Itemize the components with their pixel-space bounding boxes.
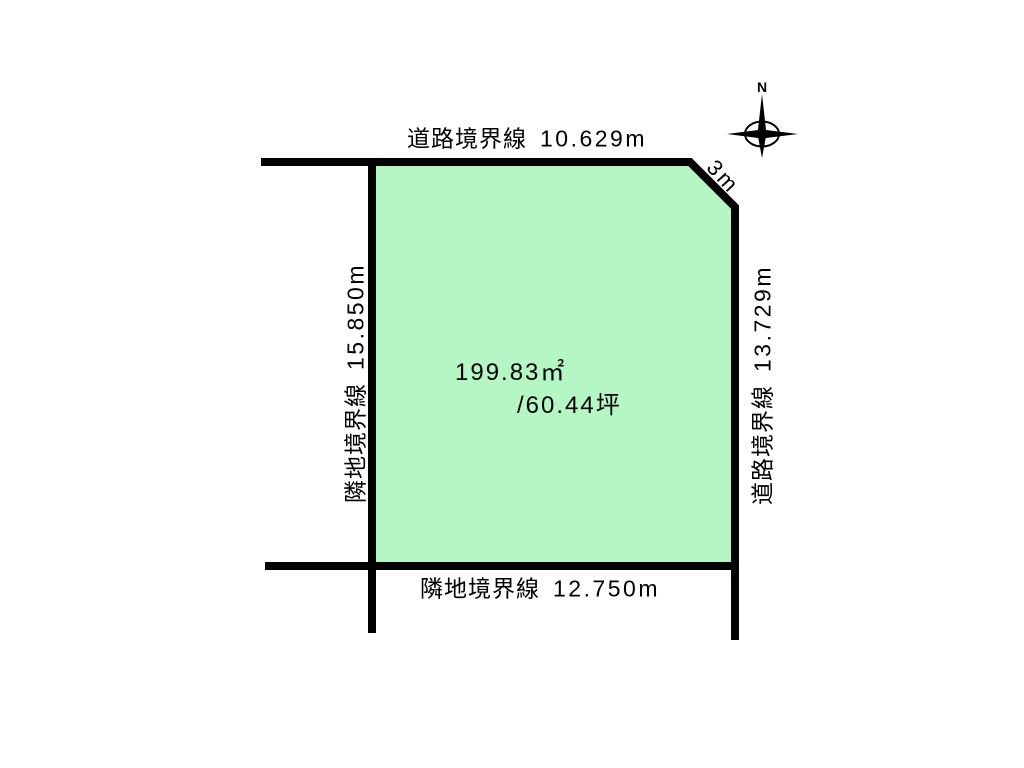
boundary-right-length: 13.729m bbox=[752, 265, 775, 372]
boundary-label-top: 道路境界線 10.629m bbox=[407, 128, 647, 151]
land-plot-diagram: N 道路境界線 10.629m 隣地境界線 12.750m 隣地境界線 15.8… bbox=[0, 0, 1024, 768]
boundary-right-name: 道路境界線 bbox=[752, 385, 775, 505]
compass-icon: N bbox=[727, 79, 798, 158]
boundary-left-length: 15.850m bbox=[345, 263, 368, 370]
boundary-label-left: 隣地境界線 15.850m bbox=[345, 263, 368, 503]
area-tsubo: /60.44坪 bbox=[517, 389, 622, 422]
boundary-left-name: 隣地境界線 bbox=[345, 383, 368, 503]
compass-north-label: N bbox=[757, 79, 767, 95]
boundary-label-bottom: 隣地境界線 12.750m bbox=[420, 578, 660, 601]
boundary-label-right: 道路境界線 13.729m bbox=[752, 265, 775, 505]
boundary-bottom-length: 12.750m bbox=[553, 578, 660, 601]
area-square-meters: 199.83㎡ bbox=[455, 356, 622, 389]
boundary-top-length: 10.629m bbox=[540, 128, 647, 151]
boundary-bottom-name: 隣地境界線 bbox=[420, 578, 540, 601]
compass-north-south-point bbox=[758, 94, 767, 158]
boundary-top-name: 道路境界線 bbox=[407, 128, 527, 151]
plot-area-label: 199.83㎡ /60.44坪 bbox=[455, 356, 622, 422]
compass-east-west-point bbox=[727, 130, 798, 139]
